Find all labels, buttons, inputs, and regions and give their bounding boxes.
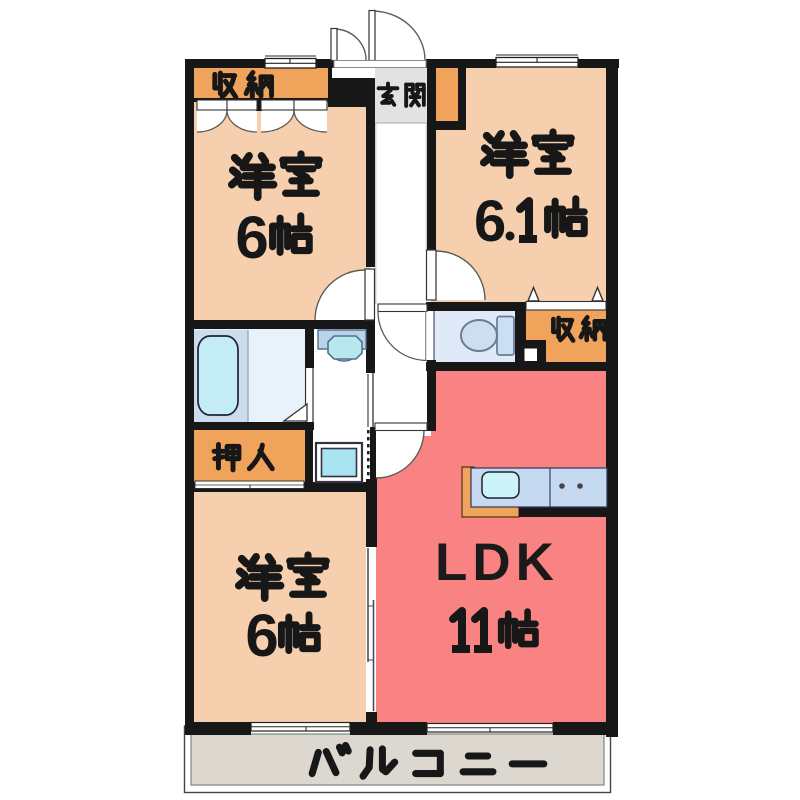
svg-text:6: 6 — [235, 204, 268, 271]
svg-text:6: 6 — [245, 602, 278, 669]
svg-text:LDK: LDK — [435, 533, 559, 592]
svg-text:6: 6 — [474, 189, 506, 254]
